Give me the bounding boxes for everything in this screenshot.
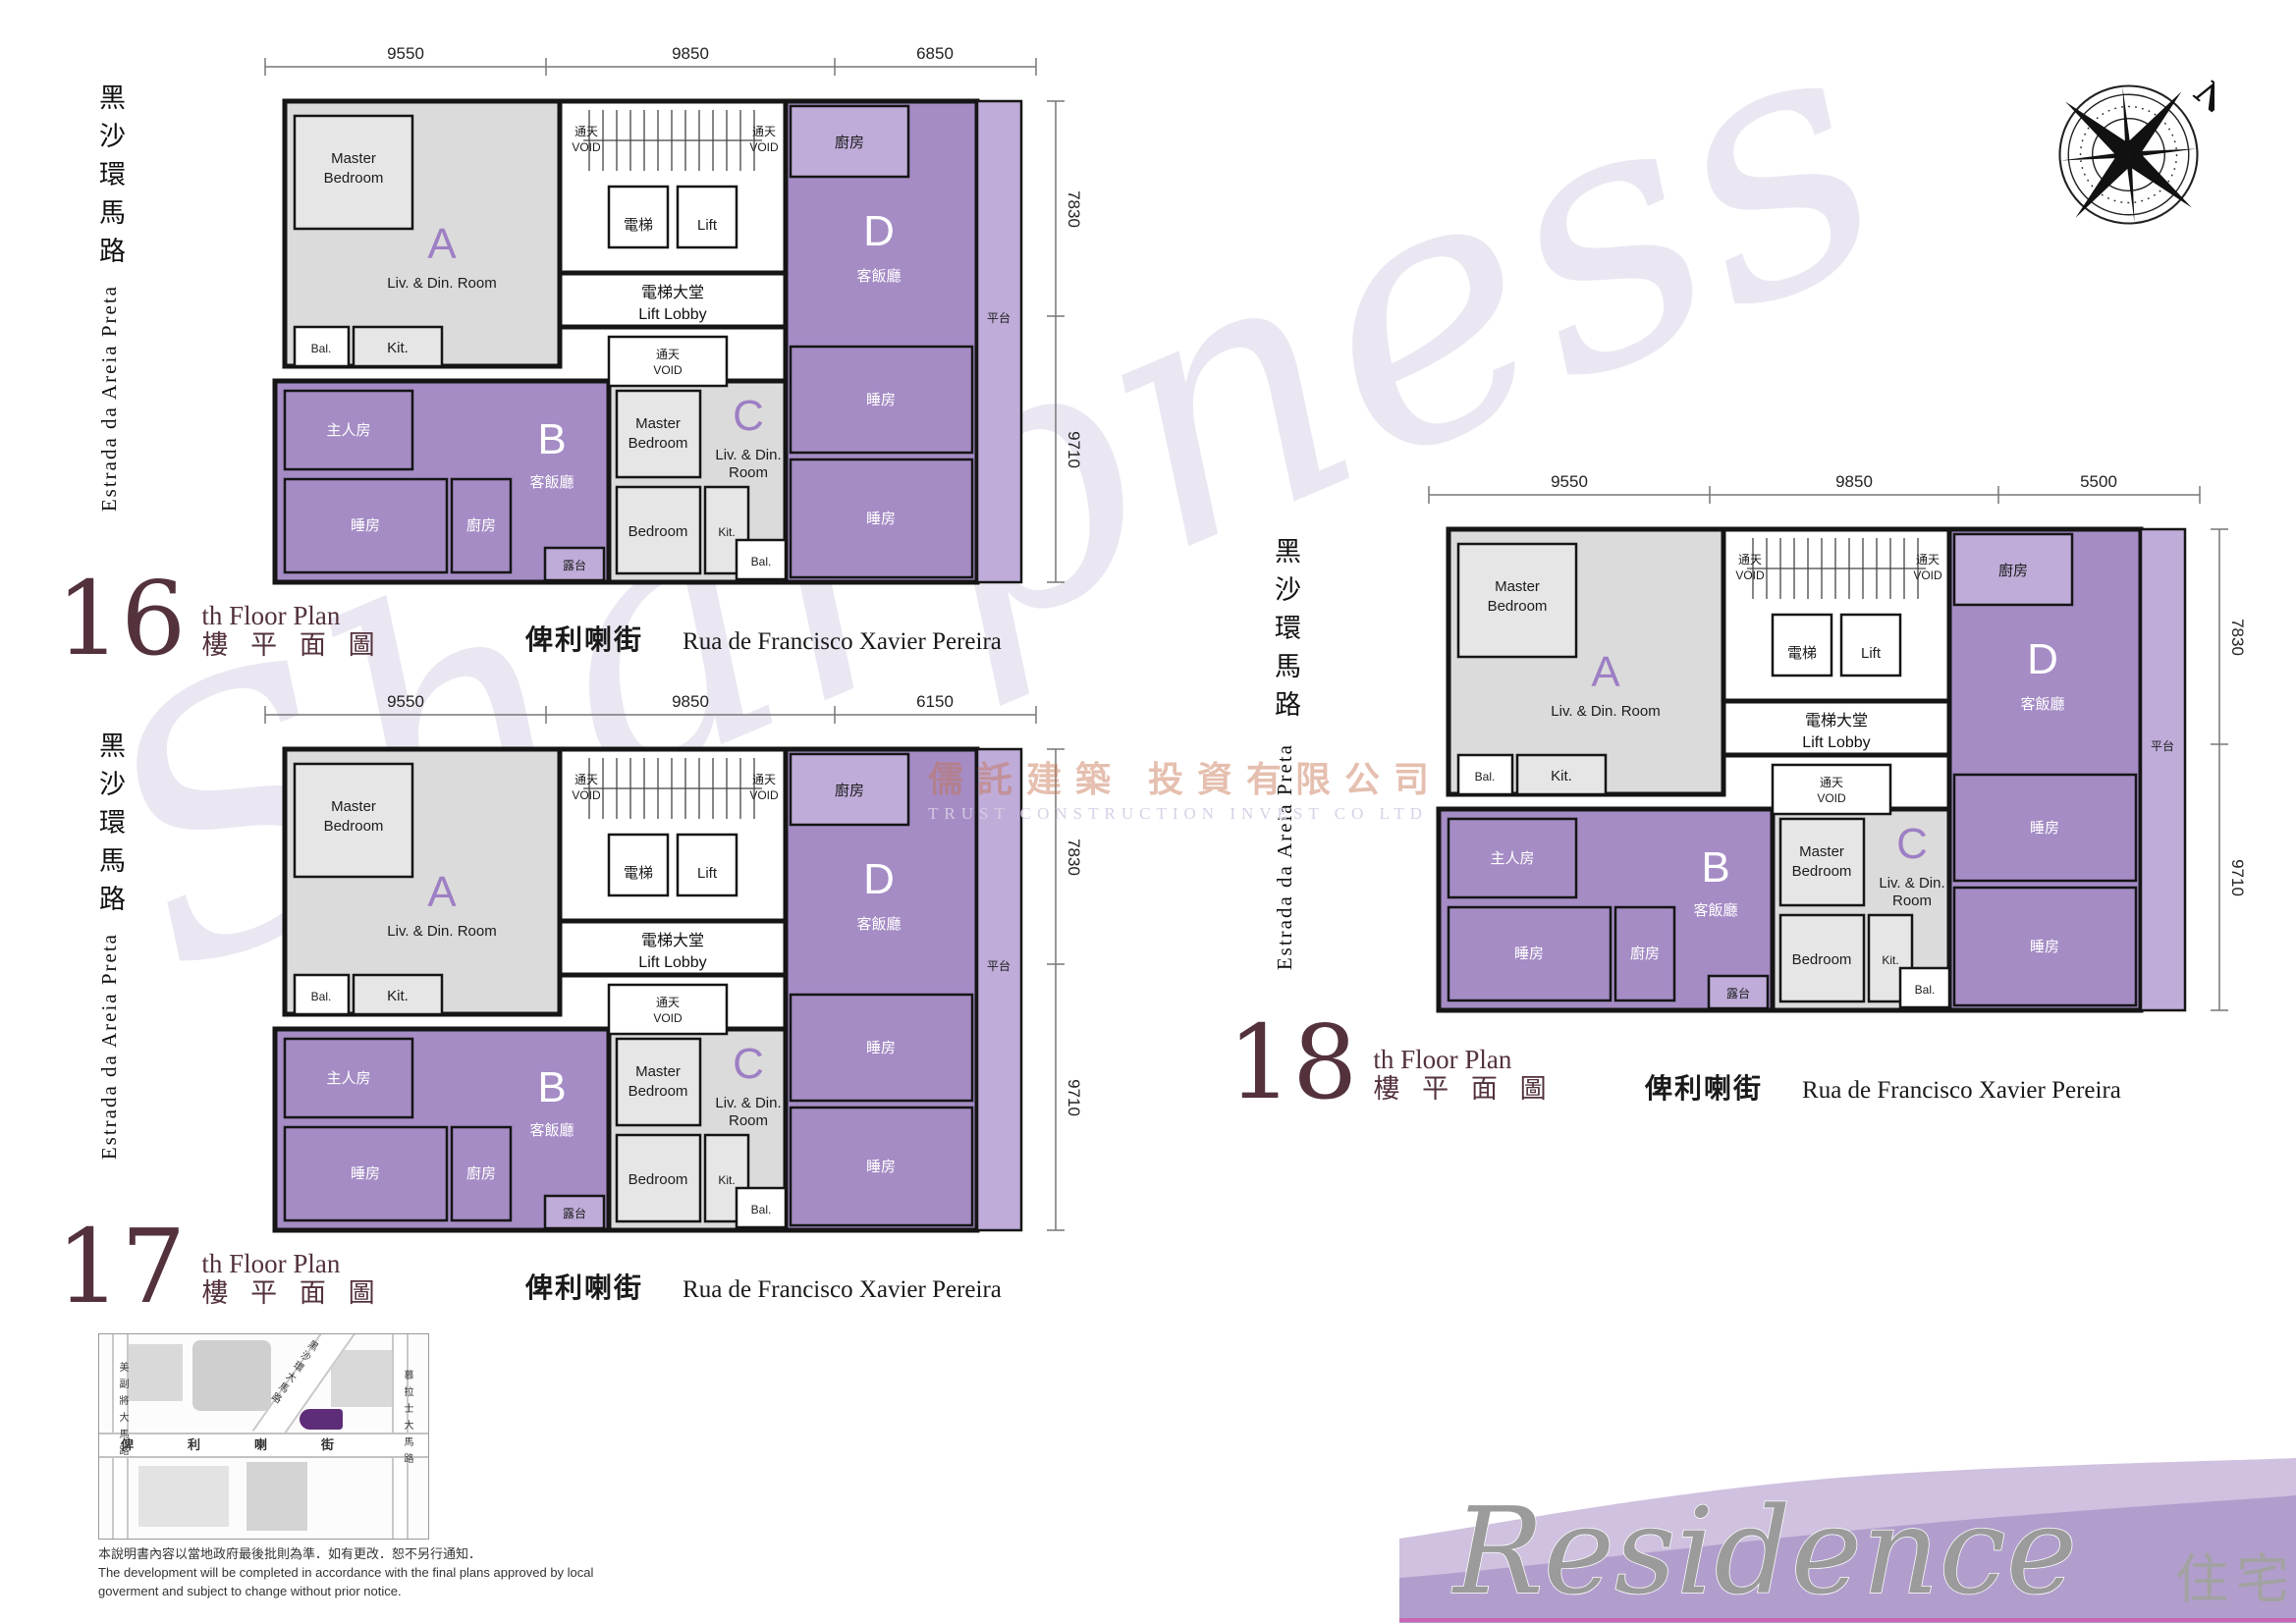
dim-top-1: 9550 [1551, 472, 1588, 491]
b-balcony-label: 露台 [563, 1206, 586, 1220]
floor-suffix-en: th Floor Plan [1373, 1045, 1554, 1074]
residence-script-text: Residence [1451, 1482, 2077, 1621]
terrace-strip [977, 101, 1021, 582]
void-bottom-cn: 通天 [1820, 776, 1843, 789]
floor-plan-block-16: 黑沙環馬路 Estrada da Areia Preta 95509850685… [54, 29, 1144, 697]
floor-plan-block-18: 黑沙環馬路 Estrada da Areia Preta 95509850550… [1213, 454, 2296, 1121]
d-kitchen-label: 廚房 [1998, 562, 2028, 579]
a-bal-label: Bal. [311, 342, 332, 355]
lobby-cn-label: 電梯大堂 [641, 284, 704, 301]
void-right-cn: 通天 [1916, 553, 1940, 567]
d-living-label: 客飯廳 [2020, 695, 2064, 713]
b-bedroom-label: 睡房 [351, 1165, 380, 1182]
void-right-cn: 通天 [752, 773, 776, 786]
c-master-bedroom [617, 391, 700, 477]
bottom-street-label: 俾利喇街 Rua de Francisco Xavier Pereira [1645, 1067, 2121, 1107]
unit-c-letter: C [733, 1040, 764, 1088]
terrace-label: 平台 [987, 958, 1011, 973]
a-master-label-1: Master [1495, 578, 1540, 595]
void-left-en: VOID [1735, 568, 1765, 582]
floor-suffix-cn: 樓 平 面 圖 [1373, 1074, 1554, 1104]
terrace-label: 平台 [2151, 738, 2174, 753]
terrace-strip [977, 749, 1021, 1230]
unit-a-letter: A [427, 220, 457, 268]
lobby-en-label: Lift Lobby [638, 306, 706, 323]
floor-suffix-cn: 樓 平 面 圖 [201, 1278, 382, 1308]
unit-d-letter: D [863, 207, 895, 255]
bottom-street-en: Rua de Francisco Xavier Pereira [683, 628, 1002, 656]
a-kit-label: Kit. [1551, 768, 1572, 784]
c-bedroom-label: Bedroom [629, 1171, 688, 1188]
dimension-right: 78309710 [2211, 529, 2247, 1010]
d-kitchen-label: 廚房 [835, 782, 864, 799]
void-room [609, 337, 727, 386]
void-right-en: VOID [749, 140, 779, 154]
floor-title-17: 17 th Floor Plan 樓 平 面 圖 [56, 1222, 383, 1313]
a-livdin-label: Liv. & Din. Room [387, 275, 496, 292]
disclaimer-en-1: The development will be completed in acc… [98, 1564, 727, 1583]
side-street-cn: 黑沙環馬路 [91, 83, 130, 275]
floor-number: 17 [56, 1222, 186, 1313]
dim-top-2: 9850 [672, 44, 709, 63]
bottom-street-cn: 俾利喇街 [525, 619, 643, 658]
map-block [138, 1466, 229, 1527]
c-master-bedroom [1780, 819, 1864, 905]
terrace-strip [2141, 529, 2185, 1010]
floor-number: 18 [1228, 1018, 1357, 1109]
lobby-cn-label: 電梯大堂 [641, 932, 704, 949]
void-left-cn: 通天 [574, 125, 598, 138]
b-balcony-label: 露台 [563, 558, 586, 572]
void-left-cn: 通天 [574, 773, 598, 786]
floor-plan-drawing-18: 95509850550078309710電梯Lift通天VOID通天VOID通天… [1311, 465, 2254, 1035]
a-master-label-2: Bedroom [1488, 598, 1548, 615]
a-livdin-label: Liv. & Din. Room [1551, 703, 1660, 720]
lift-en-label: Lift [1861, 645, 1882, 662]
floor-title-18: 18 th Floor Plan 樓 平 面 圖 [1228, 1018, 1555, 1109]
dim-right-2: 9710 [1065, 431, 1083, 468]
b-balcony-label: 露台 [1726, 986, 1750, 1001]
void-bottom-en: VOID [1817, 791, 1846, 805]
void-bottom-en: VOID [653, 363, 683, 377]
a-master-label-1: Master [331, 150, 376, 167]
void-left-cn: 通天 [1738, 553, 1762, 567]
c-kit-label: Kit. [718, 1173, 735, 1187]
dim-top-3: 6850 [916, 44, 954, 63]
dim-top-3: 5500 [2080, 472, 2117, 491]
c-bal-label: Bal. [1915, 983, 1936, 997]
c-livdin-label-1: Liv. & Din. [715, 1095, 781, 1111]
d-living-label: 客飯廳 [856, 915, 901, 933]
disclaimer-en-2: goverment and subject to change without … [98, 1583, 727, 1601]
unit-a-letter: A [1591, 648, 1620, 696]
c-bal-label: Bal. [751, 555, 772, 568]
floor-number: 16 [56, 574, 186, 665]
floor-suffix-cn: 樓 平 面 圖 [201, 630, 382, 660]
lobby-en-label: Lift Lobby [638, 954, 706, 971]
dimension-right: 78309710 [1047, 749, 1083, 1230]
unit-a-letter: A [427, 868, 457, 916]
d-bedroom-2-label: 睡房 [2030, 939, 2059, 955]
residence-cn-text: 住宅 [2175, 1550, 2296, 1609]
map-block [246, 1462, 307, 1531]
b-living-label: 客飯廳 [529, 473, 574, 491]
lobby-en-label: Lift Lobby [1802, 734, 1870, 751]
lift-cn-label: 電梯 [1787, 645, 1817, 662]
floor-plan-drawing-17: 95509850615078309710電梯Lift通天VOID通天VOID通天… [147, 685, 1090, 1255]
d-living-label: 客飯廳 [856, 267, 901, 285]
b-living-label: 客飯廳 [1693, 901, 1737, 919]
c-master-label-1: Master [635, 1063, 681, 1080]
void-right-cn: 通天 [752, 125, 776, 138]
a-bal-label: Bal. [1475, 770, 1496, 784]
disclaimer-cn: 本說明書內容以當地政府最後批則為準．如有更改．恕不另行通知． [98, 1545, 727, 1564]
d-bedroom-1-label: 睡房 [2030, 820, 2059, 837]
dim-right-1: 7830 [1065, 839, 1083, 876]
d-bedroom-2-label: 睡房 [866, 1159, 896, 1175]
void-room [1773, 765, 1890, 814]
side-street-en: Estrada da Areia Preta [1273, 743, 1297, 970]
bottom-street-cn: 俾利喇街 [1645, 1067, 1763, 1107]
location-map: 俾利喇街 美副將大馬路 慕拉士大馬路 黑沙環大馬路 [98, 1333, 429, 1540]
dim-right-1: 7830 [2228, 619, 2247, 656]
b-master-label: 主人房 [326, 422, 370, 439]
b-master-label: 主人房 [1490, 850, 1534, 867]
lift-cn-label: 電梯 [624, 865, 653, 882]
floor-suffix-en: th Floor Plan [201, 601, 382, 630]
floor-plan-block-17: 黑沙環馬路 Estrada da Areia Preta 95509850615… [54, 677, 1144, 1345]
a-kit-label: Kit. [387, 988, 409, 1004]
c-livdin-label-2: Room [1892, 893, 1932, 909]
floor-title-16: 16 th Floor Plan 樓 平 面 圖 [56, 574, 383, 665]
dimension-top: 955098506150 [265, 692, 1036, 724]
void-bottom-cn: 通天 [656, 996, 680, 1009]
c-master-label-1: Master [635, 415, 681, 432]
lift-cn-label: 電梯 [624, 217, 653, 234]
dimension-top: 955098506850 [265, 44, 1036, 76]
c-kit-label: Kit. [1882, 953, 1898, 967]
b-kitchen-label: 廚房 [466, 1164, 496, 1182]
void-right-en: VOID [749, 788, 779, 802]
dim-top-3: 6150 [916, 692, 954, 711]
map-street-right-label: 慕拉士大馬路 [400, 1370, 414, 1470]
brochure-page: Sharpness 儒託建築 投資有限公司 TRUST CONSTRUCTION… [0, 0, 2296, 1623]
bottom-street-en: Rua de Francisco Xavier Pereira [1802, 1077, 2121, 1105]
unit-b-letter: B [537, 1063, 566, 1111]
floor-suffix-en: th Floor Plan [201, 1249, 382, 1278]
side-street-cn: 黑沙環馬路 [91, 731, 130, 923]
unit-b-letter: B [537, 415, 566, 463]
lift-en-label: Lift [697, 217, 718, 234]
unit-d-letter: D [2027, 635, 2058, 683]
b-master-label: 主人房 [326, 1070, 370, 1087]
c-bedroom-label: Bedroom [1792, 951, 1852, 968]
lobby-cn-label: 電梯大堂 [1805, 712, 1868, 730]
dimension-right: 78309710 [1047, 101, 1083, 582]
a-master-label-2: Bedroom [324, 818, 384, 835]
bottom-street-en: Rua de Francisco Xavier Pereira [683, 1276, 1002, 1304]
dim-top-1: 9550 [387, 44, 424, 63]
terrace-label: 平台 [987, 310, 1011, 325]
c-bal-label: Bal. [751, 1203, 772, 1217]
c-master-label-2: Bedroom [629, 1083, 688, 1100]
void-room [609, 985, 727, 1034]
map-block [192, 1340, 271, 1411]
map-street-left-label: 美副將大馬路 [115, 1362, 130, 1462]
dimension-top: 955098505500 [1429, 472, 2200, 504]
dim-top-2: 9850 [672, 692, 709, 711]
a-master-label-2: Bedroom [324, 170, 384, 187]
b-bedroom-label: 睡房 [1514, 946, 1544, 962]
side-street-en: Estrada da Areia Preta [97, 285, 122, 512]
void-right-en: VOID [1913, 568, 1942, 582]
unit-c-letter: C [733, 392, 764, 440]
footer-wave: Residence 住宅 [1399, 1445, 2296, 1623]
void-left-en: VOID [572, 140, 601, 154]
c-kit-label: Kit. [718, 525, 735, 539]
a-bal-label: Bal. [311, 990, 332, 1003]
b-kitchen-label: 廚房 [466, 516, 496, 534]
a-livdin-label: Liv. & Din. Room [387, 923, 496, 940]
compass-rose-icon: N [2043, 69, 2214, 241]
c-master-label-1: Master [1799, 843, 1844, 860]
a-kit-label: Kit. [387, 340, 409, 356]
d-kitchen-label: 廚房 [835, 134, 864, 151]
c-master-bedroom [617, 1039, 700, 1125]
a-master-label-1: Master [331, 798, 376, 815]
unit-c-letter: C [1896, 820, 1928, 868]
void-bottom-en: VOID [653, 1011, 683, 1025]
b-bedroom-label: 睡房 [351, 517, 380, 534]
dim-top-2: 9850 [1835, 472, 1873, 491]
c-livdin-label-1: Liv. & Din. [715, 447, 781, 463]
dim-top-1: 9550 [387, 692, 424, 711]
side-street-cn: 黑沙環馬路 [1267, 537, 1305, 729]
b-living-label: 客飯廳 [529, 1121, 574, 1139]
void-left-en: VOID [572, 788, 601, 802]
c-master-label-2: Bedroom [1792, 863, 1852, 880]
map-street-mid-label: 俾利喇街 [121, 1434, 388, 1453]
dim-right-1: 7830 [1065, 190, 1083, 228]
compass-north-label: N [2187, 72, 2214, 125]
d-bedroom-2-label: 睡房 [866, 511, 896, 527]
c-livdin-label-2: Room [729, 464, 768, 481]
site-marker [300, 1409, 343, 1430]
dim-right-2: 9710 [2228, 859, 2247, 896]
floor-plan-drawing-16: 95509850685078309710電梯Lift通天VOID通天VOID通天… [147, 37, 1090, 607]
side-street-en: Estrada da Areia Preta [97, 933, 122, 1160]
c-master-label-2: Bedroom [629, 435, 688, 452]
lift-en-label: Lift [697, 865, 718, 882]
void-bottom-cn: 通天 [656, 348, 680, 361]
bottom-street-label: 俾利喇街 Rua de Francisco Xavier Pereira [525, 619, 1002, 658]
d-bedroom-1-label: 睡房 [866, 392, 896, 408]
disclaimer: 本說明書內容以當地政府最後批則為準．如有更改．恕不另行通知． The devel… [98, 1545, 727, 1601]
bottom-street-cn: 俾利喇街 [525, 1267, 643, 1306]
c-livdin-label-1: Liv. & Din. [1879, 875, 1944, 892]
bottom-street-label: 俾利喇街 Rua de Francisco Xavier Pereira [525, 1267, 1002, 1306]
d-bedroom-1-label: 睡房 [866, 1040, 896, 1056]
unit-d-letter: D [863, 855, 895, 903]
b-kitchen-label: 廚房 [1630, 945, 1660, 962]
c-livdin-label-2: Room [729, 1112, 768, 1129]
dim-right-2: 9710 [1065, 1079, 1083, 1116]
unit-b-letter: B [1701, 843, 1729, 892]
c-bedroom-label: Bedroom [629, 523, 688, 540]
